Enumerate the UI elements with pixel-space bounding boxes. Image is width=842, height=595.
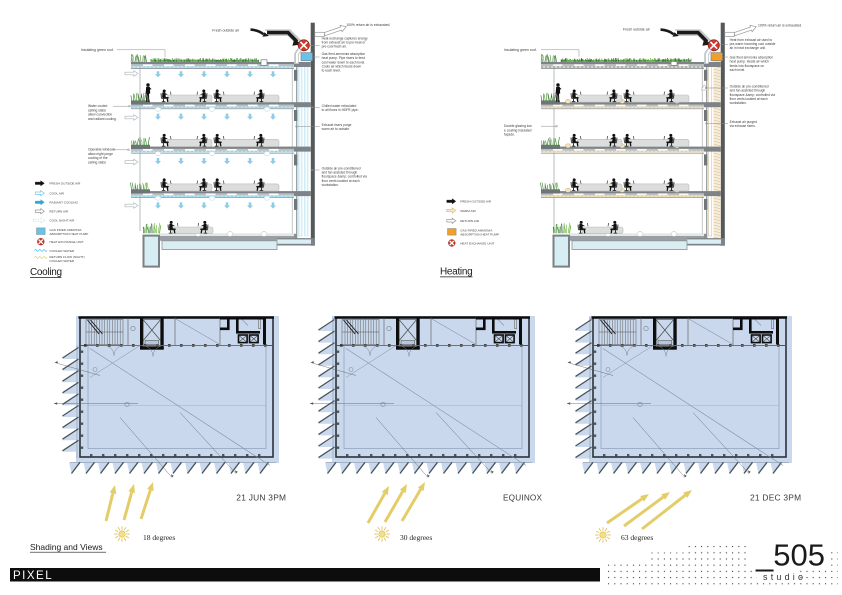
svg-text:studio: studio — [763, 572, 806, 582]
svg-text:Shading and Views: Shading and Views — [30, 542, 103, 552]
svg-text:Fresh outside air: Fresh outside air — [623, 28, 651, 32]
svg-text:COOL NIGHT AIR: COOL NIGHT AIR — [49, 219, 75, 223]
svg-text:FRESH OUTSIDE AIR: FRESH OUTSIDE AIR — [49, 182, 81, 186]
svg-text:WARM AIR: WARM AIR — [460, 209, 476, 213]
svg-text:RETURN AIR: RETURN AIR — [49, 210, 69, 214]
svg-text:PIXEL: PIXEL — [13, 570, 53, 582]
svg-text:each level.: each level. — [730, 68, 746, 72]
svg-text:21 DEC 3PM: 21 DEC 3PM — [750, 493, 801, 503]
svg-text:Insulating green roof.: Insulating green roof. — [504, 48, 537, 52]
svg-text:workstation.: workstation. — [730, 101, 747, 105]
svg-text:HEAT EXCHANGE UNIT: HEAT EXCHANGE UNIT — [49, 240, 83, 244]
svg-text:18 degrees: 18 degrees — [143, 533, 175, 542]
svg-text:via exhaust risers.: via exhaust risers. — [730, 124, 756, 128]
svg-text:Fresh outside air: Fresh outside air — [212, 29, 240, 33]
svg-text:warm air to outside.: warm air to outside. — [322, 127, 350, 131]
svg-text:FRESH OUTSIDE AIR: FRESH OUTSIDE AIR — [460, 200, 492, 204]
svg-text:workstation.: workstation. — [322, 183, 339, 187]
svg-text:RADIANT COOLING: RADIANT COOLING — [49, 201, 78, 205]
svg-text:COOLED WATER: COOLED WATER — [49, 259, 75, 263]
svg-text:to each level.: to each level. — [322, 69, 341, 73]
svg-text:HEAT EXCHANGE UNIT: HEAT EXCHANGE UNIT — [460, 241, 494, 245]
svg-text:façade.: façade. — [504, 133, 515, 137]
svg-text:EQUINOX: EQUINOX — [503, 493, 542, 502]
svg-text:COOLED WATER: COOLED WATER — [49, 249, 75, 253]
svg-text:21 JUN 3PM: 21 JUN 3PM — [236, 493, 286, 503]
svg-text:63 degrees: 63 degrees — [621, 533, 653, 542]
svg-text:pre-cool fresh air.: pre-cool fresh air. — [322, 45, 347, 49]
svg-text:Cooling: Cooling — [30, 267, 62, 278]
svg-text:and radiant cooling.: and radiant cooling. — [88, 117, 117, 121]
svg-text:Heating: Heating — [440, 267, 472, 278]
svg-text:ceiling slabs: ceiling slabs — [88, 161, 106, 165]
svg-text:ABSORPTION HEAT PUMP: ABSORPTION HEAT PUMP — [460, 232, 499, 236]
svg-text:ABSORPTION HEAT PUMP: ABSORPTION HEAT PUMP — [49, 232, 88, 236]
svg-text:_505: _505 — [755, 538, 825, 573]
svg-text:COOL AIR: COOL AIR — [49, 192, 64, 196]
svg-text:Insulating green roof.: Insulating green roof. — [81, 48, 114, 52]
svg-text:100% return air is exhausted.: 100% return air is exhausted. — [346, 23, 390, 27]
svg-text:to all floors in HDPE pipe.: to all floors in HDPE pipe. — [322, 108, 359, 112]
svg-text:RETURN AIR: RETURN AIR — [460, 219, 480, 223]
svg-text:100% return air is exhausted.: 100% return air is exhausted. — [758, 24, 802, 28]
svg-text:air in heat exchange unit.: air in heat exchange unit. — [730, 46, 766, 50]
svg-text:30 degrees: 30 degrees — [400, 533, 432, 542]
